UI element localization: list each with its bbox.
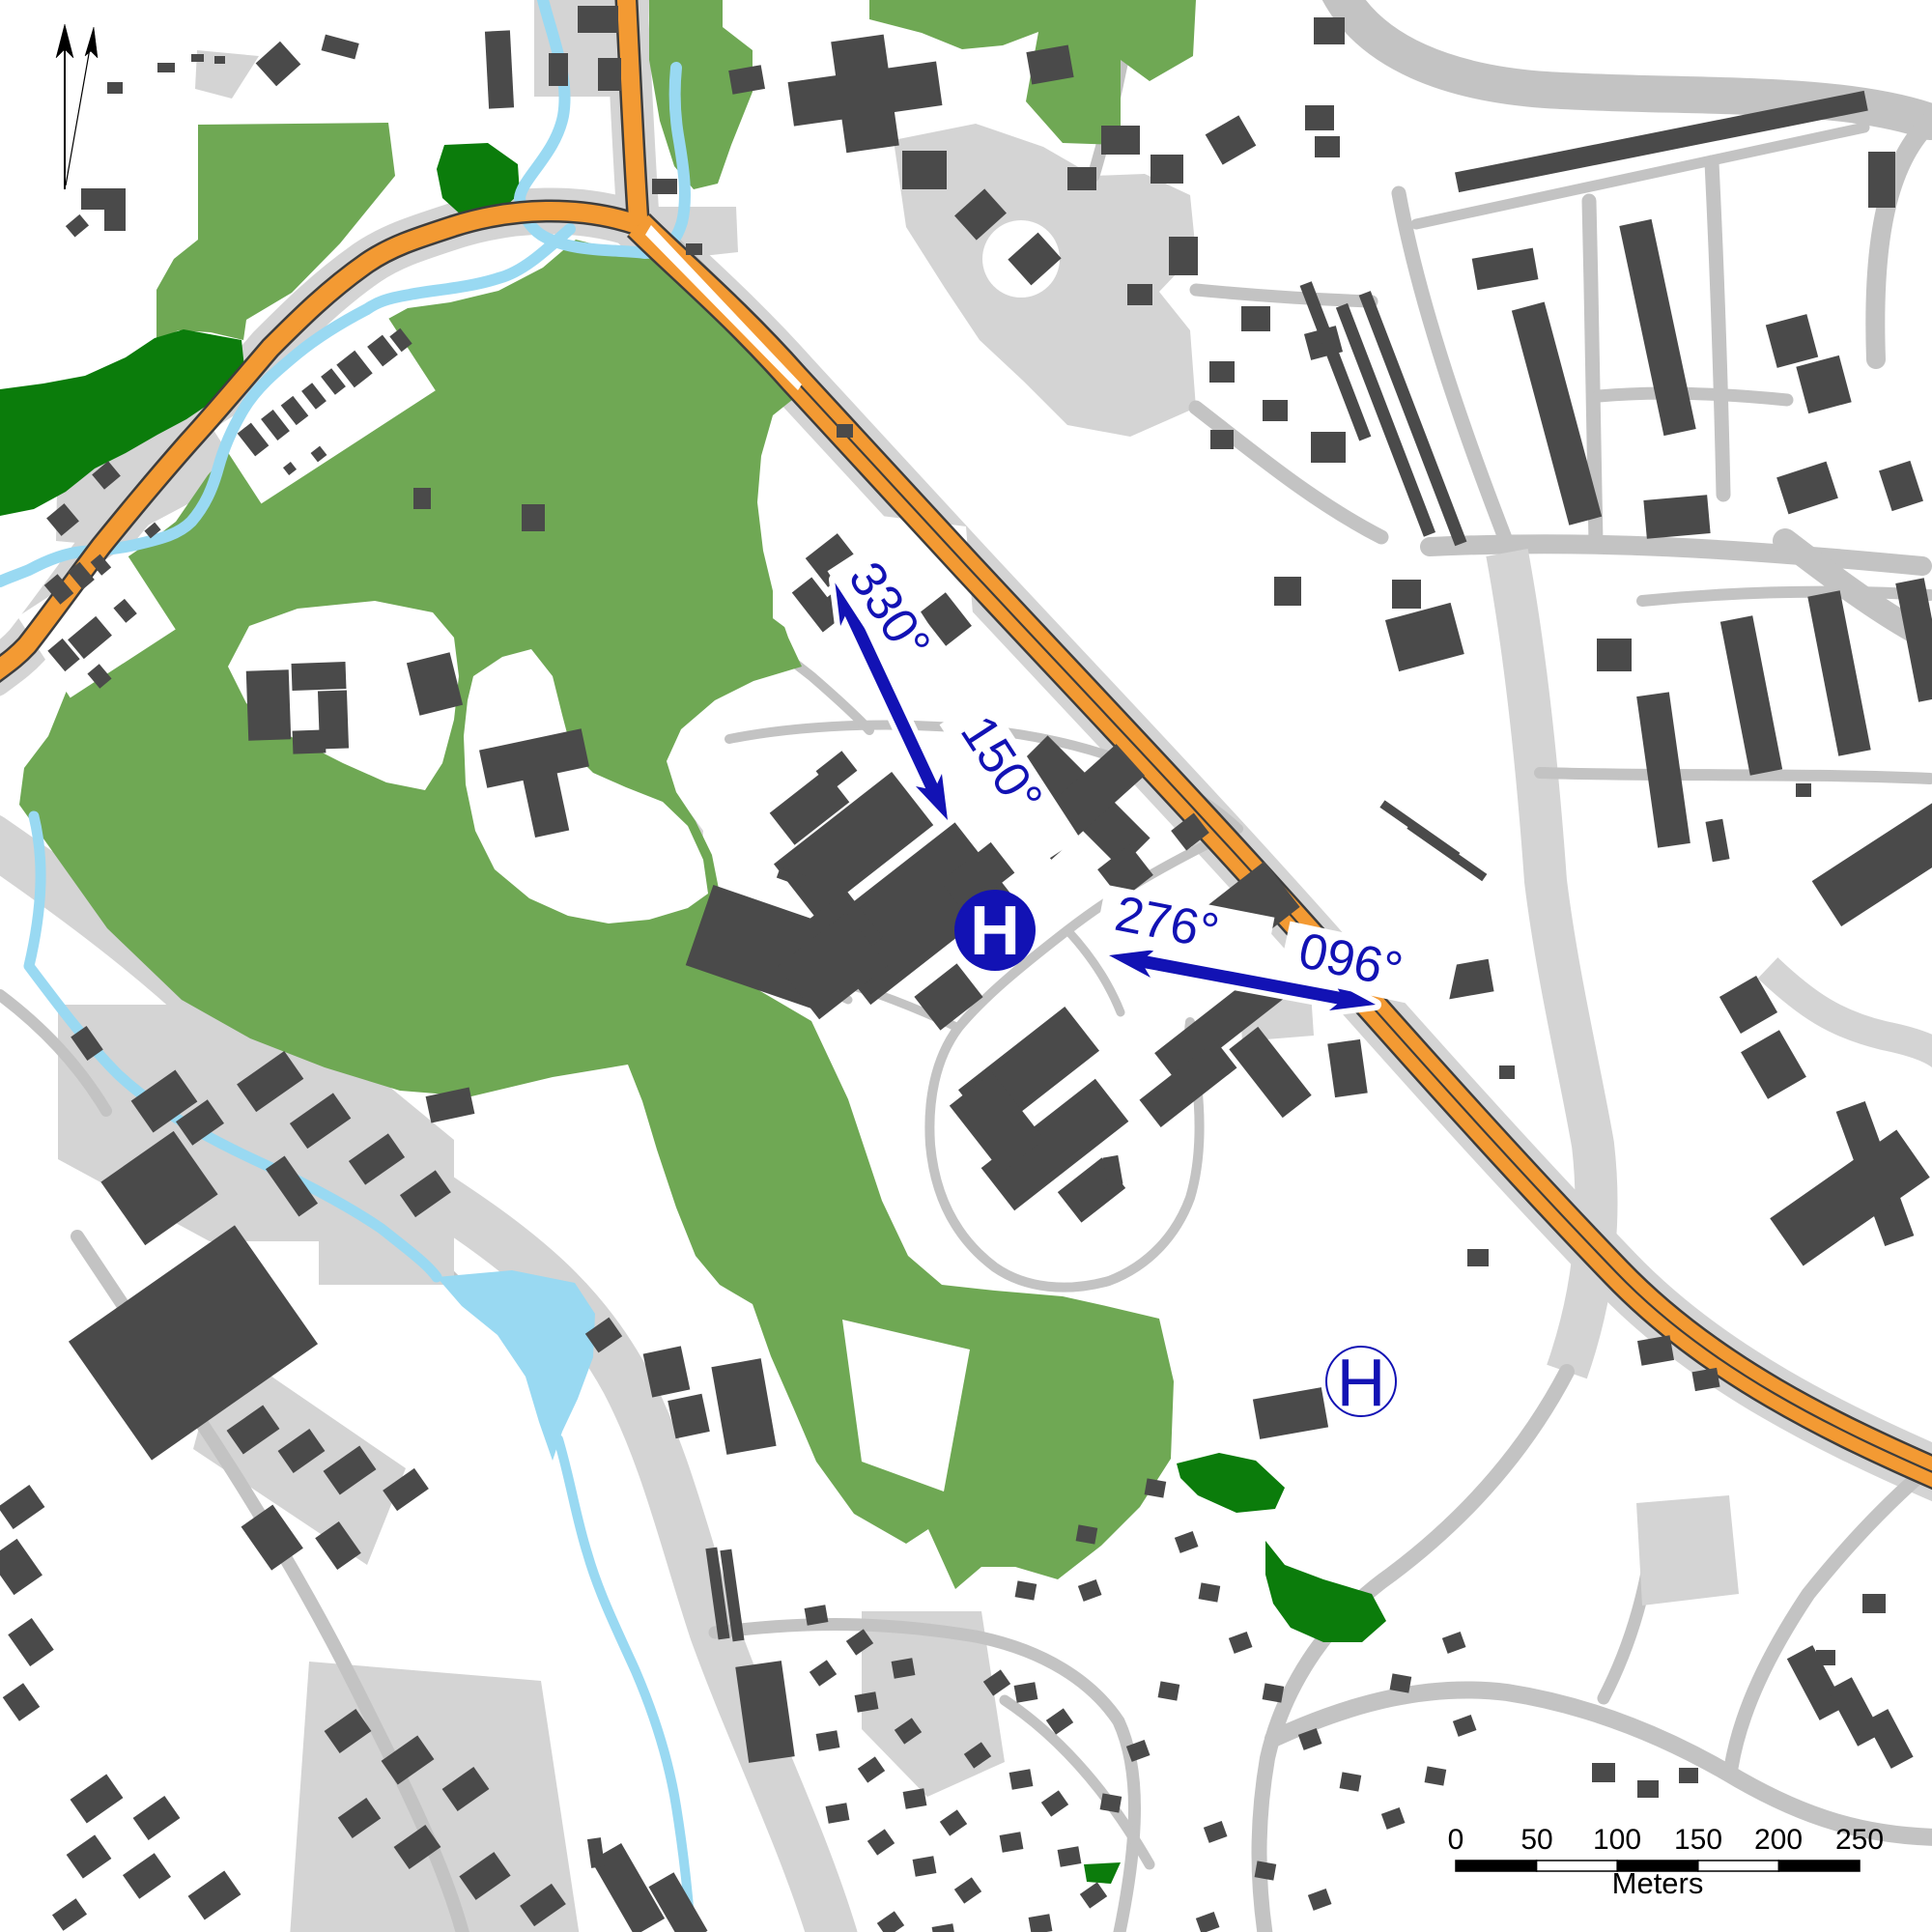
svg-text:200: 200 <box>1754 1824 1803 1856</box>
svg-text:150: 150 <box>1674 1824 1722 1856</box>
svg-text:H: H <box>1337 1345 1386 1420</box>
svg-text:Meters: Meters <box>1612 1866 1704 1900</box>
svg-text:250: 250 <box>1835 1824 1884 1856</box>
svg-text:0: 0 <box>1448 1824 1464 1856</box>
svg-text:H: H <box>970 893 1020 970</box>
svg-text:50: 50 <box>1520 1824 1552 1856</box>
svg-text:100: 100 <box>1593 1824 1641 1856</box>
